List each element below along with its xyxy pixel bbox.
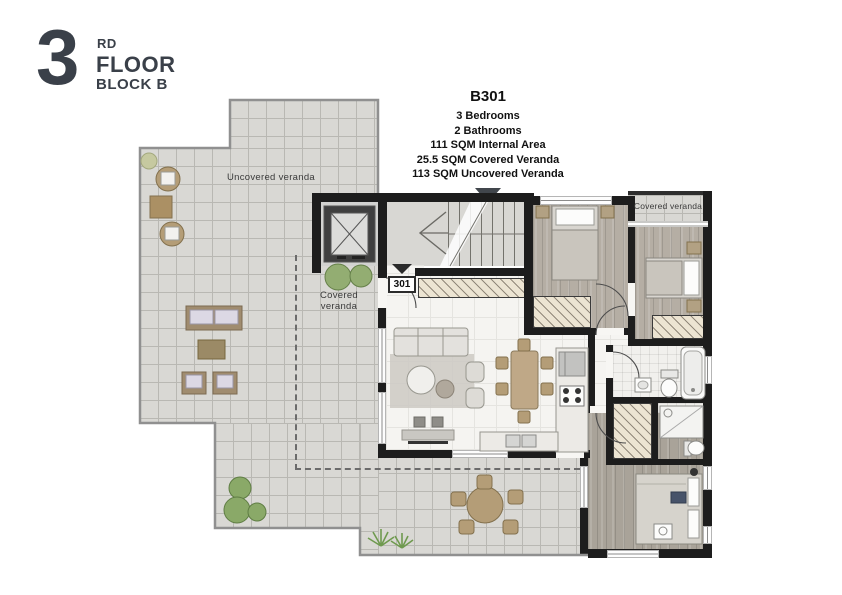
bed-icon bbox=[646, 242, 702, 312]
toilet-icon bbox=[684, 441, 704, 456]
grass-plant-icon bbox=[368, 529, 413, 548]
sink-icon bbox=[635, 378, 651, 392]
coffee-table-icon bbox=[407, 366, 435, 394]
coffee-table-icon bbox=[198, 340, 225, 359]
double-bed-icon bbox=[636, 468, 702, 544]
side-table-icon bbox=[436, 380, 454, 398]
outdoor-sofa-icon bbox=[186, 306, 242, 330]
floor-plan-page: 3 RD FLOOR BLOCK B B301 3 Bedrooms 2 Bat… bbox=[0, 0, 842, 595]
covered-veranda-label: Covered veranda bbox=[305, 290, 373, 313]
elevator-icon bbox=[324, 206, 375, 262]
sofa-icon bbox=[394, 328, 468, 356]
tv-bench-icon bbox=[402, 417, 454, 444]
bathtub-icon bbox=[681, 347, 705, 399]
covered-veranda-top-label: Covered veranda bbox=[628, 201, 708, 211]
toilet-icon bbox=[661, 370, 678, 397]
dining-table-icon bbox=[496, 339, 553, 423]
apartment-number-plate: 301 bbox=[388, 276, 416, 293]
round-chair-icon bbox=[141, 153, 184, 246]
uncovered-veranda-label: Uncovered veranda bbox=[225, 172, 317, 183]
shower-icon bbox=[660, 406, 703, 438]
stairs-icon bbox=[420, 202, 524, 266]
plan-graphics bbox=[0, 0, 842, 595]
bed-icon bbox=[536, 206, 614, 280]
entry-marker-icon bbox=[392, 264, 412, 274]
outdoor-table-icon bbox=[451, 475, 523, 534]
outdoor-armchair-icon bbox=[182, 372, 237, 394]
